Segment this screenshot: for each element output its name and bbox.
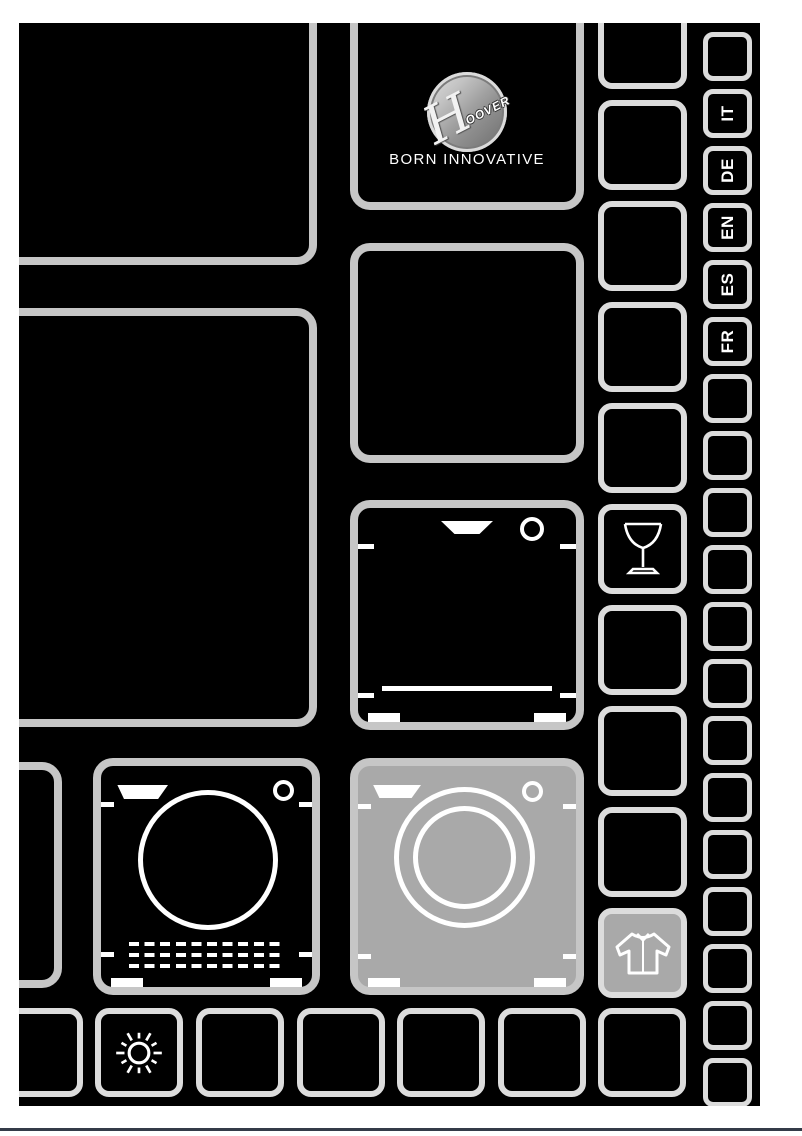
washer-drawer	[369, 785, 421, 798]
language-label: ES	[708, 265, 747, 304]
brand-tile: H OOVER BORN INNOVATIVE	[350, 23, 584, 210]
tile-middle-left	[19, 308, 317, 727]
grid-tile	[598, 201, 687, 291]
dishwasher-icon	[350, 500, 584, 730]
grid-tile	[598, 1008, 686, 1097]
dryer-vent-grille-row	[129, 953, 285, 957]
dishwasher-kickplate-line	[382, 686, 552, 691]
grid-tile	[703, 773, 752, 822]
washing-machine-icon	[350, 758, 584, 995]
washer-side-line-right-top	[563, 804, 576, 809]
dishwasher-worktop-line-left	[358, 544, 374, 549]
grid-tile	[703, 374, 752, 423]
dryer-foot-left	[111, 978, 143, 987]
washer-side-line-left-bottom	[358, 954, 371, 959]
language-tab-it: IT	[703, 89, 752, 138]
wine-glass-icon	[604, 510, 681, 588]
grid-tile	[703, 431, 752, 480]
tumble-dryer-icon	[93, 758, 320, 995]
dryer-side-line-left-top	[101, 802, 114, 807]
cover-grid: H OOVER BORN INNOVATIVE	[19, 23, 760, 1106]
language-tab-fr: FR	[703, 317, 752, 366]
dryer-vent-grille-row	[129, 964, 285, 968]
grid-tile	[703, 887, 752, 936]
language-tab-de: DE	[703, 146, 752, 195]
grid-tile	[598, 403, 687, 493]
grid-tile	[498, 1008, 586, 1097]
dryer-foot-right	[270, 978, 302, 987]
grid-tile	[598, 605, 687, 695]
washer-button	[522, 781, 543, 802]
grid-tile	[598, 706, 687, 796]
brand-tagline: BORN INNOVATIVE	[358, 151, 576, 168]
language-label: FR	[708, 322, 747, 361]
shirt-icon	[604, 914, 681, 992]
grid-tile	[397, 1008, 485, 1097]
tile-left-edge-sliver	[19, 762, 62, 988]
washer-door-inner	[413, 806, 516, 909]
language-label: IT	[708, 94, 747, 133]
grid-tile	[598, 23, 687, 89]
dishwasher-button	[520, 517, 544, 541]
grid-tile	[703, 830, 752, 879]
language-label: EN	[708, 208, 747, 247]
dryer-side-line-left-bottom	[101, 952, 114, 957]
hoover-wordmark: H OOVER	[413, 58, 521, 166]
dishwasher-foot-left	[368, 713, 400, 722]
grid-tile	[703, 545, 752, 594]
grid-tile	[598, 807, 687, 897]
manual-cover-page: H OOVER BORN INNOVATIVE	[0, 0, 802, 1136]
grid-tile	[703, 1001, 752, 1050]
grid-tile	[703, 1058, 752, 1106]
dryer-side-line-right-top	[299, 802, 312, 807]
washer-side-line-right-bottom	[563, 954, 576, 959]
dishwasher-base-line-left	[358, 693, 374, 698]
grid-tile	[703, 602, 752, 651]
grid-tile	[297, 1008, 385, 1097]
language-tab-en: EN	[703, 203, 752, 252]
washer-side-line-left-top	[358, 804, 371, 809]
dryer-button	[273, 780, 294, 801]
sun-icon	[101, 1014, 177, 1091]
dryer-door	[138, 790, 278, 930]
dishwasher-foot-right	[534, 713, 566, 722]
dishwasher-worktop-line-right	[560, 544, 576, 549]
logo-letters-oover: OOVER	[463, 93, 512, 127]
tile-empty-middle	[350, 243, 584, 463]
dishwasher-base-line-right	[560, 693, 576, 698]
grid-tile	[598, 100, 687, 190]
washer-foot-right	[534, 978, 566, 987]
tile-top-left	[19, 23, 317, 265]
grid-tile	[703, 32, 752, 81]
washer-foot-left	[368, 978, 400, 987]
dishwasher-handle	[441, 521, 493, 534]
grid-tile	[703, 659, 752, 708]
wine-glass-tile	[598, 504, 687, 594]
page-bottom-rule	[0, 1128, 802, 1131]
shirt-tile	[598, 908, 687, 998]
grid-tile	[196, 1008, 284, 1097]
grid-tile	[19, 1008, 83, 1097]
language-tab-es: ES	[703, 260, 752, 309]
dryer-vent-grille-row	[129, 942, 285, 946]
language-label: DE	[708, 151, 747, 190]
grid-tile	[703, 716, 752, 765]
dryer-side-line-right-bottom	[299, 952, 312, 957]
sun-tile	[95, 1008, 183, 1097]
grid-tile	[703, 488, 752, 537]
dryer-drawer	[113, 785, 168, 799]
grid-tile	[703, 944, 752, 993]
grid-tile	[598, 302, 687, 392]
hoover-logo: H OOVER	[427, 72, 507, 152]
